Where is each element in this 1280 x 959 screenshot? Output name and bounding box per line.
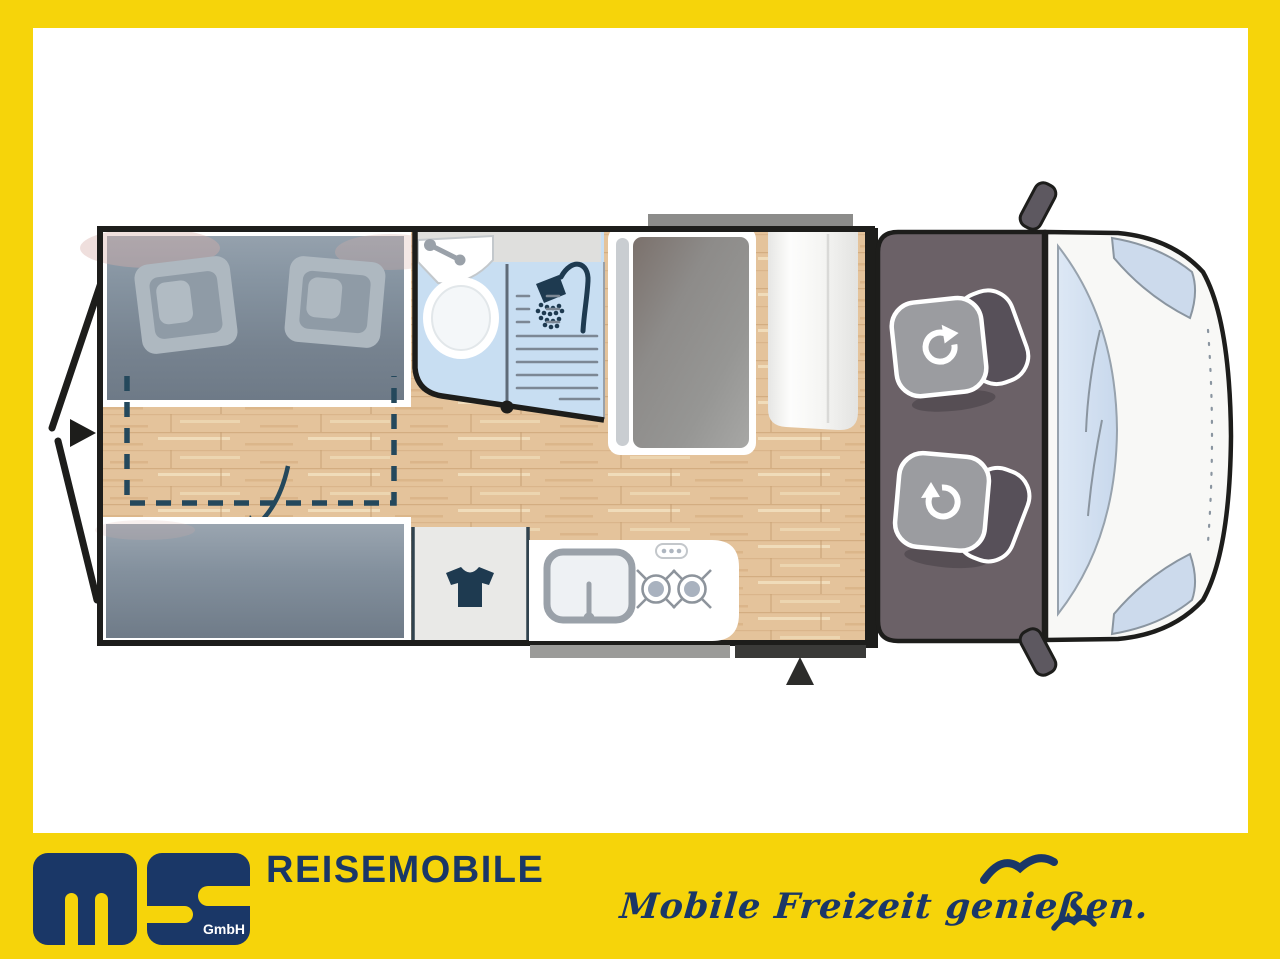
pillow-icon — [133, 254, 239, 355]
side-cabinet — [768, 228, 858, 430]
pillow-icon — [283, 255, 386, 349]
logo-letter-m — [33, 853, 137, 945]
campervan-floorplan — [0, 0, 1280, 959]
bench-bed-bottom — [95, 517, 411, 644]
gmbh-label: GmbH — [203, 921, 245, 937]
stove-burner-icon — [637, 570, 675, 608]
stove-control-dots-icon — [656, 544, 687, 558]
rear-bed-top — [80, 228, 445, 407]
logo-notch — [65, 893, 78, 945]
brand-title: REISEMOBILE — [266, 849, 544, 892]
entry-door-dark — [735, 645, 866, 658]
entrance-arrow-icon — [786, 657, 814, 685]
kitchen-sink-icon — [547, 552, 632, 624]
logo-notch — [147, 906, 193, 923]
entry-step-gray — [530, 645, 730, 658]
side-mirror-icon — [1017, 180, 1059, 233]
kitchen-block — [529, 540, 739, 641]
toilet-icon — [423, 277, 499, 359]
fridge-cabinet — [608, 227, 756, 455]
cab-floor — [878, 232, 1044, 641]
stove-burner-icon — [673, 570, 711, 608]
bathroom — [413, 230, 604, 420]
seagull-icon — [1050, 906, 1098, 938]
van-front — [1017, 180, 1231, 679]
logo-notch — [95, 893, 108, 945]
shower-door-pivot-dot — [501, 401, 514, 414]
logo-notch — [198, 886, 250, 906]
seagull-icon — [978, 848, 1060, 892]
wardrobe — [412, 527, 529, 643]
advert-frame: GmbH REISEMOBILE Mobile Freizeit genieße… — [0, 0, 1280, 959]
